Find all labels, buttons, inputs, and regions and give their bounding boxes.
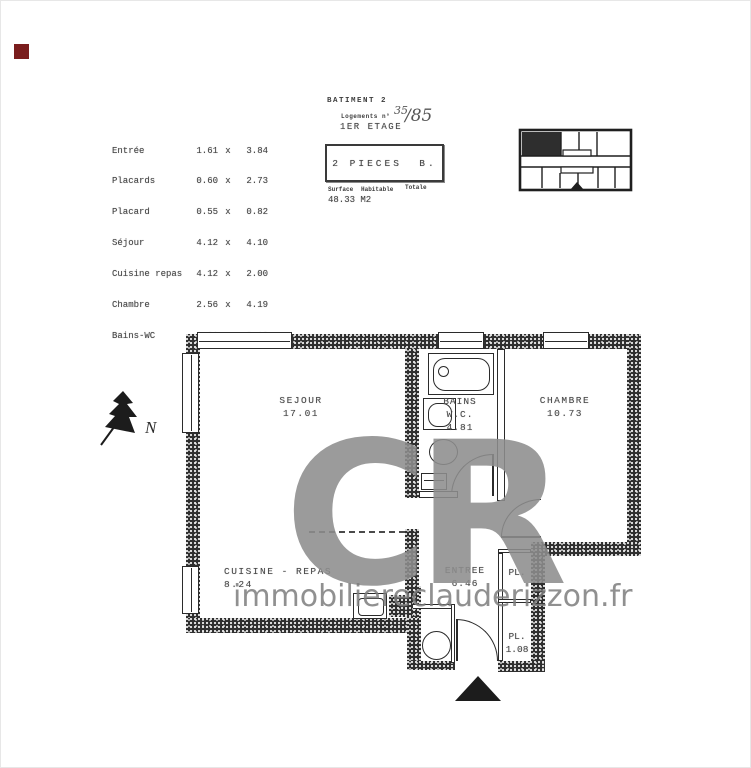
room-area: 1.08 <box>503 643 531 656</box>
dimension-separator: x <box>218 300 238 310</box>
apartment-type-box: 2 PIECES B. <box>325 144 444 182</box>
building-key-plan <box>518 127 634 195</box>
lot-label: Logements n° <box>341 113 390 120</box>
lot-total: /85 <box>405 106 432 126</box>
room-length: 2.73 <box>238 176 268 186</box>
building-title: BATIMENT 2 <box>327 97 387 105</box>
table-row: Chambre2.56x4.19 <box>112 300 268 310</box>
room-name: Entrée <box>112 146 190 156</box>
window-cuisine-west <box>182 566 199 614</box>
window-chambre-north <box>543 332 589 349</box>
surface-word: Totale <box>405 184 427 191</box>
north-label: N <box>144 418 158 437</box>
bathtub <box>428 353 494 395</box>
room-name: Bains-WC <box>112 331 190 341</box>
room-width: 4.12 <box>190 238 218 248</box>
dimension-separator: x <box>218 207 238 217</box>
room-length: 2.00 <box>238 269 268 279</box>
wall-east <box>627 334 641 556</box>
red-scan-marker <box>14 44 29 59</box>
dimension-separator: x <box>218 176 238 186</box>
room-name: Cuisine repas <box>112 269 190 279</box>
dimension-separator: x <box>218 269 238 279</box>
surface-total-value: 48.33 M2 <box>328 195 371 205</box>
water-heater <box>422 631 451 660</box>
surface-word: Habitable <box>361 186 393 193</box>
room-label-placard-bottom: PL. 1.08 <box>503 630 531 656</box>
floor-label: 1ER ETAGE <box>340 122 402 132</box>
wall-vestibule-south <box>407 661 455 670</box>
room-length: 4.10 <box>238 238 268 248</box>
room-length: 0.82 <box>238 207 268 217</box>
table-row: Cuisine repas4.12x2.00 <box>112 269 268 279</box>
table-row: Placards0.60x2.73 <box>112 176 268 186</box>
room-dimension-table: Entrée1.61x3.84 Placards0.60x2.73 Placar… <box>112 125 268 362</box>
entrance-arrow <box>455 676 501 701</box>
north-arrow-icon: N <box>97 387 177 457</box>
room-width: 1.61 <box>190 146 218 156</box>
table-row: Entrée1.61x3.84 <box>112 146 268 156</box>
table-row: Séjour4.12x4.10 <box>112 238 268 248</box>
highlighted-unit <box>522 132 561 156</box>
dimension-separator: x <box>218 238 238 248</box>
window-sejour-west <box>182 353 199 433</box>
surface-word: Surface <box>328 186 353 193</box>
room-length: 3.84 <box>238 146 268 156</box>
room-width: 4.12 <box>190 269 218 279</box>
window-bains-north <box>438 332 484 349</box>
room-width: 2.56 <box>190 300 218 310</box>
room-name: Séjour <box>112 238 190 248</box>
room-width: 0.60 <box>190 176 218 186</box>
room-length: 4.19 <box>238 300 268 310</box>
room-width: 0.55 <box>190 207 218 217</box>
room-name: Placards <box>112 176 190 186</box>
room-name: PL. <box>503 630 531 643</box>
apartment-type-label: 2 PIECES B. <box>332 158 436 169</box>
table-row: Placard0.55x0.82 <box>112 207 268 217</box>
agency-url-watermark: immobiliereclauderizzon.fr <box>233 579 632 614</box>
wall-closet-south <box>498 661 545 672</box>
room-name: Placard <box>112 207 190 217</box>
floor-plan-sheet: Entrée1.61x3.84 Placards0.60x2.73 Placar… <box>0 0 751 768</box>
dimension-separator: x <box>218 146 238 156</box>
room-name: Chambre <box>112 300 190 310</box>
window-sejour-north <box>197 332 292 349</box>
agency-logo-watermark: CR <box>284 425 554 605</box>
